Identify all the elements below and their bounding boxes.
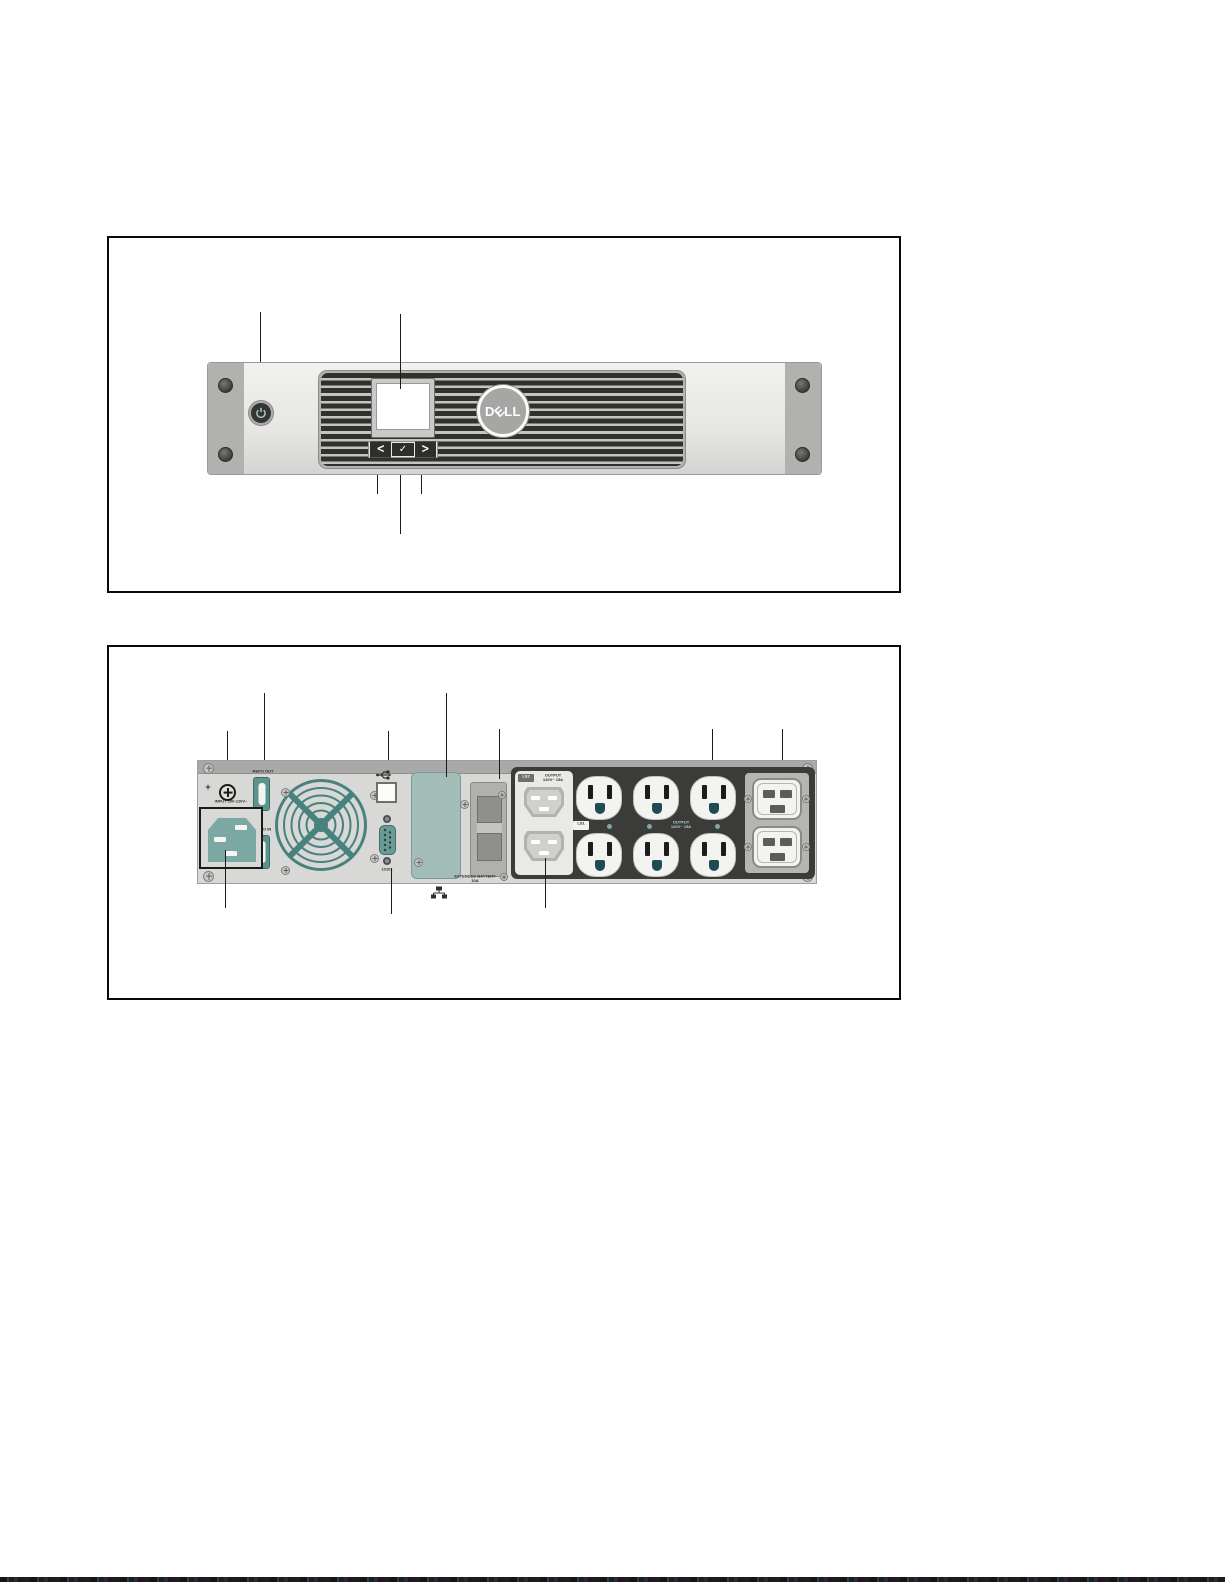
nema-outlet xyxy=(633,833,679,877)
serial-screw xyxy=(383,857,391,865)
figure-rear-panel: + REPO OUT REPO IN INPUT 100-120V~ xyxy=(107,645,901,1000)
callout-line-power-inlet xyxy=(225,850,226,908)
inlet-pin-slot xyxy=(235,825,247,830)
c19-outlet xyxy=(752,778,802,820)
battery-connector-band xyxy=(477,823,502,833)
scroll-right-button: > xyxy=(415,441,436,457)
control-button-row: < ✓ > xyxy=(368,441,438,458)
serial-port xyxy=(379,825,396,855)
power-button xyxy=(249,401,273,425)
manual-page: < ✓ > DELL xyxy=(0,0,1225,1585)
dell-logo-text: DELL xyxy=(485,404,521,419)
select-button: ✓ xyxy=(392,443,413,456)
nema-outlet xyxy=(576,833,622,877)
dell-logo: DELL xyxy=(477,385,529,437)
callout-line-option-slot xyxy=(446,693,447,777)
nema-outlet xyxy=(690,776,736,820)
screw-icon xyxy=(795,378,810,393)
ground-symbol: + xyxy=(202,782,214,792)
c14-outlet xyxy=(524,787,564,817)
screw-icon xyxy=(203,871,214,882)
callout-line-serial-port xyxy=(391,868,392,914)
screw-icon xyxy=(744,843,752,851)
repo-out-port xyxy=(253,777,270,811)
inlet-pin-slot xyxy=(214,837,226,842)
c14-outlet xyxy=(524,831,564,861)
ls1-badge: LS1 xyxy=(573,821,589,830)
screw-icon xyxy=(218,447,233,462)
ups-front-chassis: < ✓ > DELL xyxy=(207,362,822,475)
screw-icon xyxy=(203,763,214,774)
screw-icon xyxy=(802,843,810,851)
screw-icon xyxy=(414,858,423,867)
ground-hole xyxy=(595,803,605,814)
scroll-left-button: < xyxy=(370,441,391,457)
serial-screw xyxy=(383,815,391,823)
power-icon xyxy=(255,407,267,419)
iec-inlet xyxy=(208,818,256,862)
input-rating-label: INPUT 100-120V~ xyxy=(198,799,264,805)
callout-line-c14-outlets xyxy=(545,858,546,908)
ls2-output-rating-label: OUTPUT120V~ 15A xyxy=(535,773,571,785)
page-bottom-scan-line xyxy=(0,1577,1225,1582)
usb-icon xyxy=(376,769,392,781)
rack-ear-right xyxy=(785,363,821,474)
screw-icon xyxy=(500,873,508,881)
inlet-pin-slot xyxy=(225,851,237,856)
ups-rear-chassis: + REPO OUT REPO IN INPUT 100-120V~ xyxy=(197,760,817,884)
repo-out-label: REPO OUT xyxy=(243,769,283,775)
screw-icon xyxy=(281,866,290,875)
screw-icon xyxy=(795,447,810,462)
screw-icon xyxy=(460,800,469,809)
battery-connector-label: EXTENDED BATTERY10A xyxy=(453,874,497,884)
outlet-section: LS2 OUTPUT120V~ 15A xyxy=(511,767,815,879)
lcd-display xyxy=(371,378,435,438)
nema-outlet xyxy=(633,776,679,820)
segment-indicator-dot xyxy=(715,824,720,829)
battery-connector-recess xyxy=(477,796,502,823)
screw-icon xyxy=(744,795,752,803)
ls2-badge: LS2 xyxy=(518,774,534,782)
ground-hole xyxy=(595,860,605,871)
segment-indicator-dot xyxy=(607,824,612,829)
callout-line-repo-out xyxy=(264,693,265,767)
screw-icon xyxy=(281,788,290,797)
ground-hole xyxy=(709,860,719,871)
ground-hole xyxy=(709,803,719,814)
serial-port-label: 10101 xyxy=(369,867,405,873)
rack-ear-left xyxy=(208,363,244,474)
nema-outlet xyxy=(690,833,736,877)
battery-connector-recess xyxy=(477,833,502,861)
screw-icon xyxy=(498,791,506,799)
lcd-screen xyxy=(376,383,430,430)
callout-line-battery-connector xyxy=(499,729,500,779)
screw-icon xyxy=(218,378,233,393)
ground-hole xyxy=(652,860,662,871)
screw-icon xyxy=(802,795,810,803)
c19-outlet xyxy=(752,826,802,868)
nema-outlet xyxy=(576,776,622,820)
network-icon xyxy=(431,886,447,899)
screw-icon xyxy=(370,854,379,863)
c19-outlet-group xyxy=(745,773,809,873)
callout-line-lcd xyxy=(400,314,401,389)
ground-hole xyxy=(652,803,662,814)
figure-front-panel: < ✓ > DELL xyxy=(107,236,901,593)
ls2-outlet-group: LS2 OUTPUT120V~ 15A xyxy=(515,771,573,875)
ac-input-connector xyxy=(199,807,263,869)
usb-port xyxy=(376,782,397,803)
main-output-rating-label: OUTPUT120V~ 15A xyxy=(651,820,711,834)
